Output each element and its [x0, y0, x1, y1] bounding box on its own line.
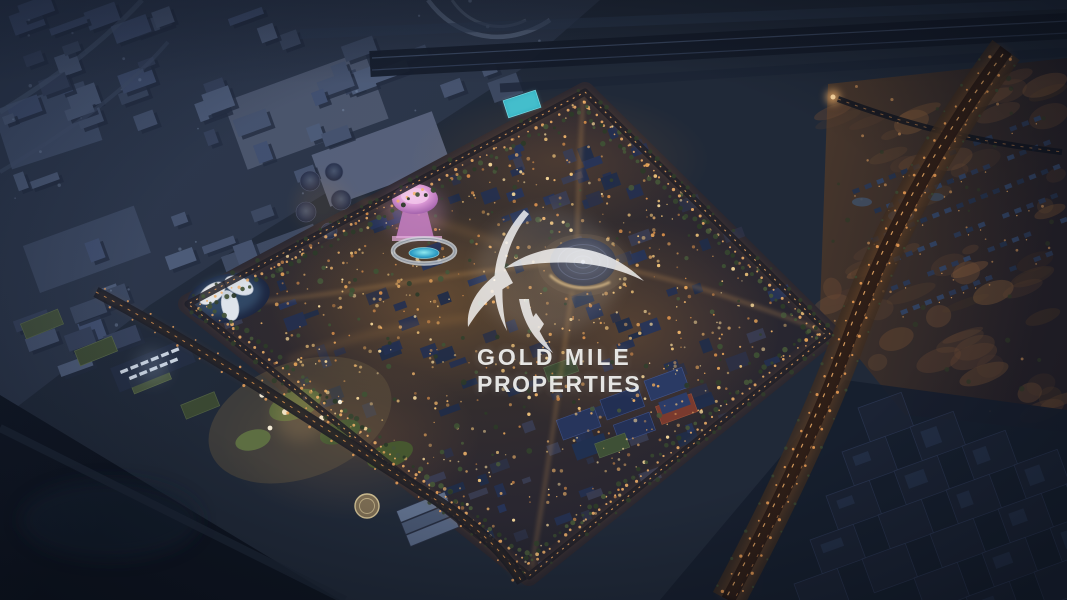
helipad — [355, 494, 379, 518]
scene-canvas — [0, 0, 1067, 600]
aerial-night-photo: GOLD MILE PROPERTIES — [0, 0, 1067, 600]
